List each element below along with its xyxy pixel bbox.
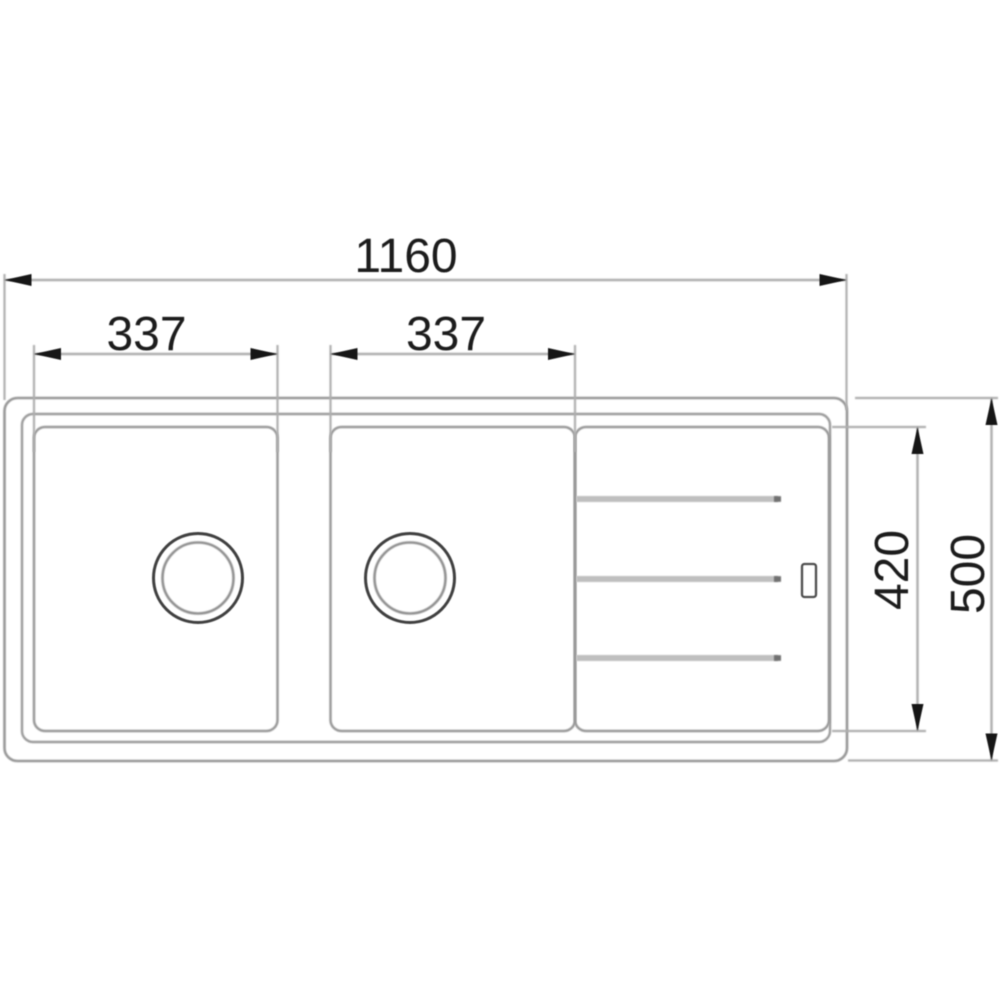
svg-text:420: 420	[866, 530, 919, 610]
svg-text:337: 337	[106, 308, 186, 361]
svg-text:337: 337	[406, 308, 486, 361]
svg-text:1160: 1160	[354, 230, 457, 283]
svg-text:500: 500	[942, 534, 995, 614]
